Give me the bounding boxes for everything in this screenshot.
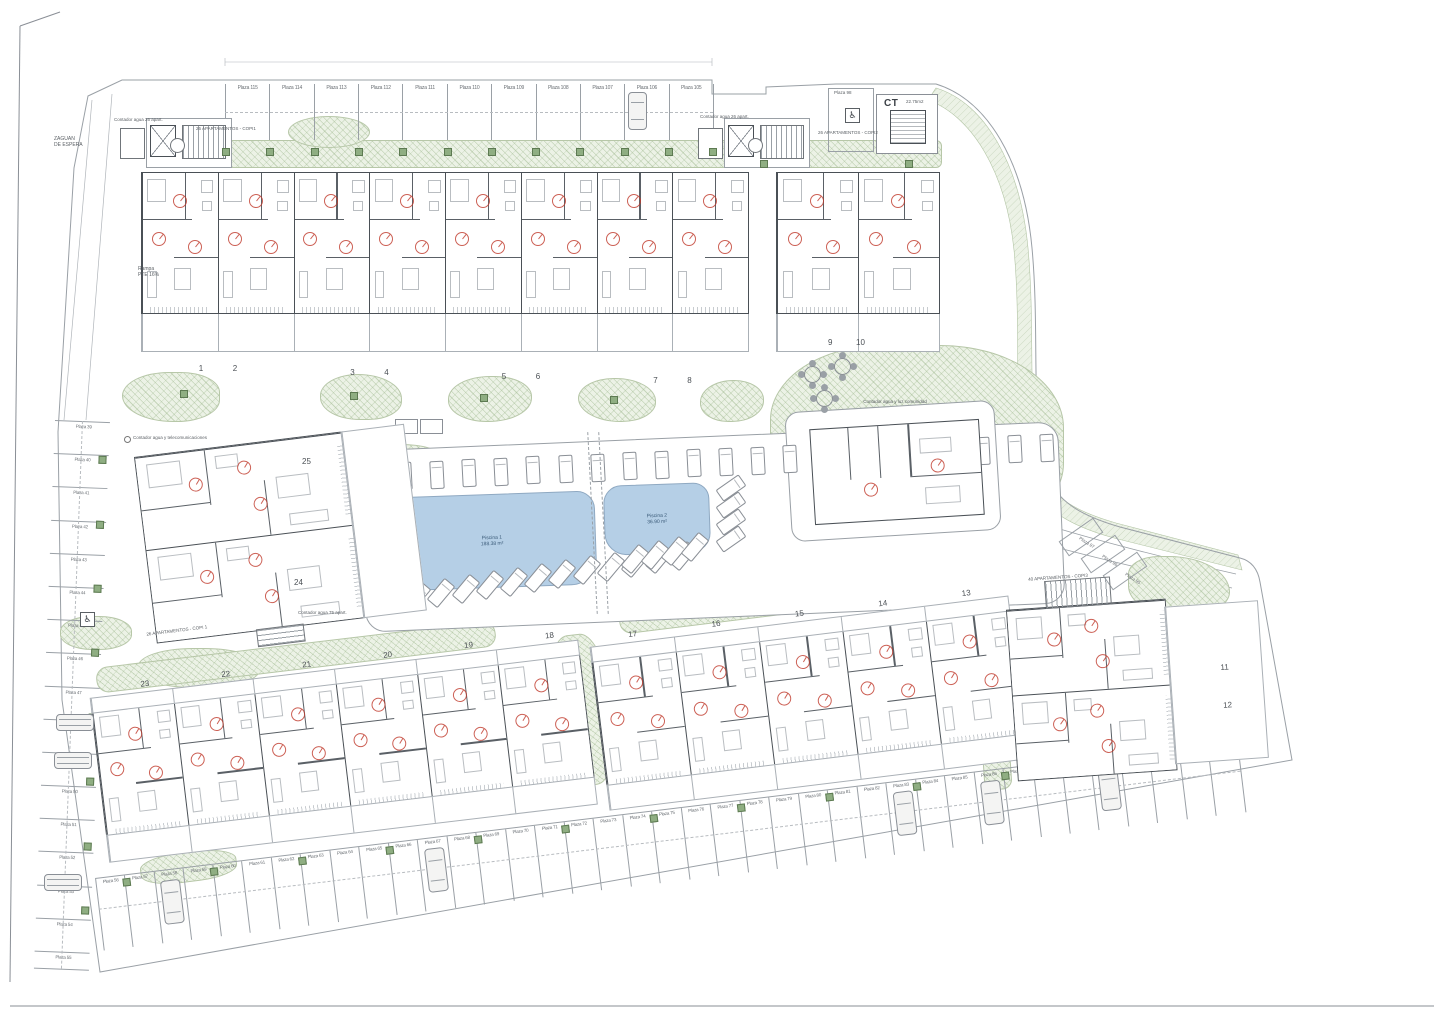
furniture [428, 180, 440, 193]
meter-closet [120, 128, 145, 159]
tree-icon [350, 392, 358, 400]
plaza98-label: Plaza 98 [834, 90, 852, 95]
furniture [722, 729, 743, 751]
furniture [137, 790, 157, 811]
furniture [429, 201, 439, 211]
furniture [400, 681, 415, 694]
door-swing-arc [188, 240, 202, 254]
interior-wall [893, 257, 939, 258]
tree-icon [532, 148, 540, 156]
pool-area: 36.90 m² [647, 519, 667, 526]
unit-number: 20 [383, 650, 393, 660]
furniture [156, 710, 171, 723]
door-swing-arc [152, 232, 166, 246]
tree-icon [709, 148, 717, 156]
door-swing-arc [303, 232, 317, 246]
door-swing-arc [733, 703, 749, 719]
terrace-hatch [605, 307, 665, 313]
interior-wall [682, 686, 737, 694]
furniture [299, 771, 319, 792]
interior-wall [1065, 693, 1070, 743]
furniture [543, 742, 563, 763]
furniture [812, 268, 830, 290]
furniture [461, 751, 481, 772]
furniture [223, 179, 241, 202]
door-swing-arc [984, 672, 1000, 688]
furniture [287, 565, 323, 591]
tree-icon [266, 148, 274, 156]
residential-block-north [141, 172, 749, 314]
interior-wall [812, 257, 858, 258]
garden-plot [597, 313, 673, 351]
furniture [1119, 719, 1146, 741]
interior-wall [765, 675, 820, 683]
door-swing-arc [476, 194, 490, 208]
furniture [215, 454, 239, 470]
door-swing-arc [552, 194, 566, 208]
door-swing-arc [392, 735, 408, 751]
terrace-hatch [681, 307, 741, 313]
furniture [146, 461, 182, 489]
garden-plot [353, 517, 426, 617]
unit-number: 21 [302, 659, 312, 669]
door-swing-arc [900, 683, 916, 699]
furniture [226, 546, 250, 562]
parking-stall-label: Plaza 51 [42, 821, 94, 828]
handicap-icon: ♿ [80, 612, 95, 627]
door-swing-arc [109, 761, 125, 777]
furniture [1122, 668, 1153, 681]
furniture [783, 271, 793, 298]
terrace-hatch [453, 307, 513, 313]
door-swing-arc [531, 232, 545, 246]
note-circle-icon [124, 436, 131, 443]
furniture [321, 709, 333, 720]
furniture [655, 180, 667, 193]
interior-wall [904, 173, 905, 219]
furniture [277, 180, 289, 193]
interior-wall [598, 219, 647, 220]
door-swing-arc [817, 693, 833, 709]
furniture [147, 179, 165, 202]
door-swing-arc [1090, 704, 1105, 719]
furniture [271, 778, 284, 803]
apartment-unit [676, 641, 775, 775]
terrace-hatch [302, 307, 362, 313]
tree-icon [91, 649, 99, 657]
parking-stall-label: Plaza 108 [537, 85, 580, 91]
interior-wall [1010, 655, 1062, 660]
sun-lounger [558, 455, 573, 484]
terrace-hatch [378, 307, 438, 313]
furniture [1128, 753, 1159, 766]
unit-number: 23 [140, 679, 150, 689]
tree-icon [180, 390, 188, 398]
furniture [326, 268, 343, 290]
sun-lounger [750, 446, 765, 475]
furniture [661, 677, 673, 688]
tree-icon [905, 160, 913, 168]
furniture [932, 622, 955, 645]
apartment-unit [445, 173, 521, 313]
parking-stall-label: Plaza 52 [41, 854, 93, 861]
furniture [602, 179, 620, 202]
interior-wall [477, 257, 520, 258]
copi1-top-label: 26 APARTAMENTOS - COPI1 [196, 126, 291, 131]
interior-wall [823, 173, 824, 219]
unit-number: 7 [653, 376, 657, 385]
garden-plot [294, 313, 370, 351]
furniture [190, 787, 203, 812]
door-swing-arc [339, 240, 353, 254]
door-swing-arc [236, 460, 252, 476]
apartment-unit [255, 684, 351, 817]
tree-icon [825, 793, 834, 802]
tree-icon [210, 867, 219, 876]
furniture [609, 747, 622, 773]
door-swing-arc [869, 232, 883, 246]
furniture [353, 201, 363, 211]
interior-wall [932, 655, 987, 663]
interior-wall [215, 543, 223, 598]
garden-plot [521, 313, 597, 351]
furniture [526, 271, 535, 298]
unit-number: 14 [878, 598, 888, 608]
interior-wall [179, 737, 232, 744]
furniture [741, 648, 756, 662]
door-swing-arc [515, 713, 531, 729]
tree-icon [649, 814, 658, 823]
furniture [375, 271, 384, 298]
tree-icon [610, 396, 618, 404]
garden-plot [142, 313, 218, 351]
door-swing-arc [271, 742, 287, 758]
tree-icon [222, 148, 230, 156]
apartment-unit [498, 655, 594, 788]
nota-telecom-label: Contador agua y telecomunicaciones [133, 435, 263, 440]
furniture [433, 758, 446, 783]
apartment-unit [597, 173, 673, 313]
door-swing-arc [606, 232, 620, 246]
door-swing-arc [311, 745, 327, 761]
unit-number: 9 [828, 338, 832, 347]
interior-wall [370, 219, 419, 220]
furniture [602, 271, 611, 298]
furniture [403, 699, 415, 710]
furniture [942, 706, 955, 732]
apartment-unit [218, 173, 294, 313]
apartment-unit [417, 664, 513, 797]
tree-icon [1000, 772, 1009, 781]
furniture [599, 663, 622, 686]
interior-wall [342, 718, 395, 725]
tree-icon [96, 520, 104, 528]
door-swing-arc [190, 752, 206, 768]
door-swing-arc [907, 240, 921, 254]
furniture [180, 705, 202, 728]
furniture [925, 485, 962, 504]
sun-lounger [622, 452, 637, 481]
parked-car [44, 874, 82, 891]
furniture [277, 201, 287, 211]
furniture [972, 698, 993, 720]
apartment-unit [174, 693, 270, 826]
unit-number: 10 [856, 338, 865, 347]
door-swing-arc [943, 670, 959, 686]
furniture [375, 179, 393, 202]
furniture [776, 726, 789, 752]
door-swing-arc [642, 240, 656, 254]
parking-stall-label: Plaza 112 [359, 85, 402, 91]
garden-plot [1171, 679, 1268, 763]
apartment-unit [142, 173, 218, 313]
furniture [638, 739, 659, 761]
apartment-unit [1007, 600, 1171, 696]
tree-icon [561, 825, 570, 834]
tree-icon [86, 778, 94, 786]
unit-number: 19 [464, 640, 474, 650]
furniture [218, 780, 238, 801]
door-swing-arc [473, 726, 489, 742]
unit-number: 17 [628, 629, 638, 639]
unit-number: 1 [199, 364, 203, 373]
apartment-unit [858, 173, 939, 313]
furniture [825, 638, 840, 652]
stair-flight [760, 125, 804, 159]
apartment-unit [294, 173, 370, 313]
furniture [174, 268, 191, 290]
furniture [859, 716, 872, 742]
door-swing-arc [693, 701, 709, 717]
garden-plot [777, 313, 858, 351]
paper-edge-corner [20, 12, 60, 26]
furniture [504, 666, 526, 689]
sun-lounger [1007, 435, 1022, 464]
sun-lounger [526, 456, 541, 485]
apartment-unit [777, 173, 858, 313]
sun-lounger [590, 453, 605, 482]
tree-icon [81, 906, 89, 914]
unit-number: 5 [502, 372, 506, 381]
parking-stall-label: Plaza 43 [53, 556, 105, 563]
furniture [682, 653, 705, 676]
furniture [562, 661, 577, 674]
parked-car [54, 752, 92, 769]
furniture [514, 749, 527, 774]
furniture [484, 690, 496, 701]
tree-icon [298, 857, 307, 866]
furniture [99, 715, 121, 738]
apartment-unit [1013, 684, 1177, 780]
door-swing-arc [554, 716, 570, 732]
tree-icon [84, 842, 92, 850]
furniture [565, 680, 577, 691]
terrace-table [834, 358, 851, 375]
furniture [352, 768, 365, 793]
garden-plot [1165, 601, 1262, 685]
furniture [1021, 701, 1048, 725]
door-swing-arc [249, 194, 263, 208]
sun-lounger [461, 459, 476, 488]
tree-icon [913, 782, 922, 791]
furniture [922, 201, 933, 211]
furniture [656, 201, 666, 211]
interior-wall [847, 428, 851, 480]
unit-number: 11 [1220, 662, 1229, 672]
green-area [700, 380, 764, 422]
door-swing-arc [1102, 738, 1117, 753]
apartment-unit [842, 621, 941, 755]
interior-wall [848, 665, 903, 673]
sun-lounger [782, 445, 797, 474]
door-swing-arc [567, 240, 581, 254]
furniture [318, 690, 333, 703]
stair-flight [1044, 576, 1112, 609]
furniture [705, 268, 722, 290]
furniture [108, 797, 121, 822]
furniture [202, 201, 212, 211]
unit-number: 12 [1223, 700, 1233, 710]
furniture [237, 700, 252, 713]
door-swing-arc [173, 194, 187, 208]
furniture [450, 271, 459, 298]
terrace-table [804, 366, 821, 383]
parking-stall-label: Plaza 109 [492, 85, 535, 91]
door-swing-arc [455, 232, 469, 246]
furniture [805, 719, 826, 741]
contador-comunidad-label: Contador agua y luz comunidad [820, 399, 970, 404]
furniture [911, 646, 923, 657]
interior-wall [203, 450, 211, 505]
apartment-unit [521, 173, 597, 313]
furniture [864, 271, 874, 298]
tree-icon [385, 846, 394, 855]
terrace-hatch [867, 307, 931, 313]
door-swing-arc [810, 194, 824, 208]
terrace-hatch [226, 307, 286, 313]
door-swing-arc [610, 711, 626, 727]
interior-wall [629, 257, 672, 258]
furniture [840, 180, 853, 193]
furniture [158, 553, 194, 581]
furniture [1113, 634, 1140, 656]
door-swing-arc [1052, 716, 1067, 731]
furniture [276, 473, 312, 499]
residential-block-southeast: 1112 [1002, 564, 1271, 793]
unit-number: 13 [961, 588, 971, 598]
door-swing-arc [1096, 653, 1111, 668]
interior-wall [402, 257, 445, 258]
paper-edge-left [10, 26, 20, 982]
interior-wall [141, 502, 209, 512]
apartment-unit [759, 631, 858, 765]
door-swing-arc [788, 232, 802, 246]
tree-icon [122, 878, 131, 887]
tree-icon [399, 148, 407, 156]
contador75-label: Contador agua 75 apart. [298, 610, 388, 615]
sun-lounger [686, 449, 701, 478]
furniture [828, 657, 840, 668]
copi2-top-label: 26 APARTAMENTOS - COPI2 [818, 130, 913, 135]
unit-number: 8 [687, 376, 691, 385]
tree-icon [576, 148, 584, 156]
interior-wall [705, 257, 748, 258]
interior-wall [219, 219, 268, 220]
parking-stall-label: Plaza 113 [315, 85, 358, 91]
interior-wall [143, 219, 192, 220]
tree-icon [621, 148, 629, 156]
apartment-unit [369, 173, 445, 313]
furniture [450, 179, 468, 202]
furniture [223, 271, 232, 298]
door-swing-arc [826, 240, 840, 254]
furniture [731, 180, 743, 193]
tree-icon [444, 148, 452, 156]
parking-stall-label: Plaza 114 [270, 85, 313, 91]
furniture [580, 201, 590, 211]
furniture [289, 508, 330, 525]
terrace-hatch [786, 307, 850, 313]
furniture [921, 180, 934, 193]
interior-wall [250, 257, 293, 258]
furniture [678, 271, 687, 298]
door-swing-arc [860, 680, 876, 696]
sun-lounger [718, 448, 733, 477]
door-swing-arc [682, 232, 696, 246]
garden-plot [218, 313, 294, 351]
interior-wall [153, 594, 221, 604]
parking-stall-label: Plaza 111 [403, 85, 446, 91]
tree-icon [737, 803, 746, 812]
door-swing-arc [199, 569, 215, 585]
pool-area: 188.38 m² [481, 541, 504, 548]
apartment-unit [672, 173, 748, 313]
garden-plot [342, 425, 415, 525]
terrace-hatch [529, 307, 589, 313]
furniture [580, 180, 592, 193]
furniture [629, 268, 646, 290]
furniture [201, 180, 213, 193]
interior-wall [98, 747, 151, 754]
furniture [783, 179, 803, 202]
site-plan-canvas: Piscina 1188.38 m²Piscina 236.90 m²♿♿Pla… [0, 0, 1440, 1024]
door-swing-arc [290, 706, 306, 722]
garden-strip [141, 312, 749, 352]
garden-plot [445, 313, 521, 351]
door-swing-arc [379, 232, 393, 246]
furniture [658, 658, 673, 672]
tree-icon [760, 160, 768, 168]
parking-stall-label: Plaza 50 [44, 788, 96, 795]
door-swing-arc [149, 764, 165, 780]
zaguan-label: ZAGUAN DE ESPERA [54, 136, 83, 148]
door-swing-arc [776, 690, 792, 706]
door-swing-arc [1084, 619, 1099, 634]
interior-wall [423, 708, 476, 715]
interior-wall [1059, 608, 1064, 658]
furniture [402, 268, 419, 290]
parking-stall-label: Plaza 55 [37, 954, 89, 961]
furniture [841, 201, 852, 211]
sun-lounger [1039, 434, 1054, 463]
parking-stall-label: Plaza 105 [670, 85, 713, 91]
furniture [250, 268, 267, 290]
tree-icon [311, 148, 319, 156]
tree-icon [98, 456, 106, 464]
furniture [893, 268, 911, 290]
terrace-hatch [150, 307, 210, 313]
garden-plot [672, 313, 748, 351]
